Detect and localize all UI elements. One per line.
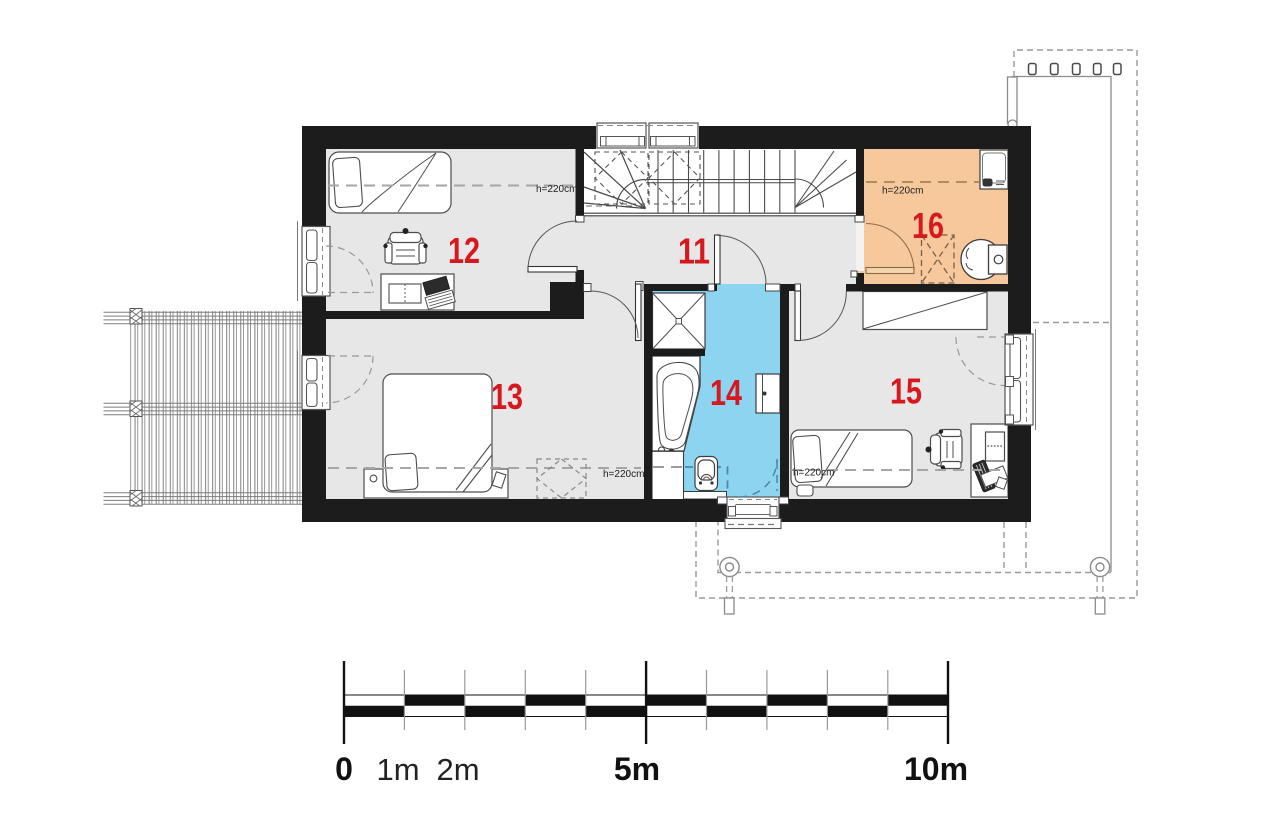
svg-text:5m: 5m [614, 751, 660, 787]
svg-text:2m: 2m [436, 752, 479, 787]
svg-text:10m: 10m [904, 751, 968, 787]
svg-text:h=220cm: h=220cm [536, 184, 577, 195]
svg-text:h=220cm: h=220cm [882, 186, 923, 197]
svg-text:h=220cm: h=220cm [603, 469, 644, 480]
svg-text:1m: 1m [376, 752, 419, 787]
svg-text:15: 15 [890, 371, 922, 412]
svg-text:h=220cm: h=220cm [793, 468, 834, 479]
svg-text:11: 11 [678, 231, 710, 272]
svg-text:16: 16 [912, 205, 944, 246]
svg-text:14: 14 [710, 372, 742, 413]
svg-text:12: 12 [448, 230, 480, 271]
svg-text:13: 13 [491, 376, 523, 417]
svg-text:0: 0 [335, 751, 353, 787]
